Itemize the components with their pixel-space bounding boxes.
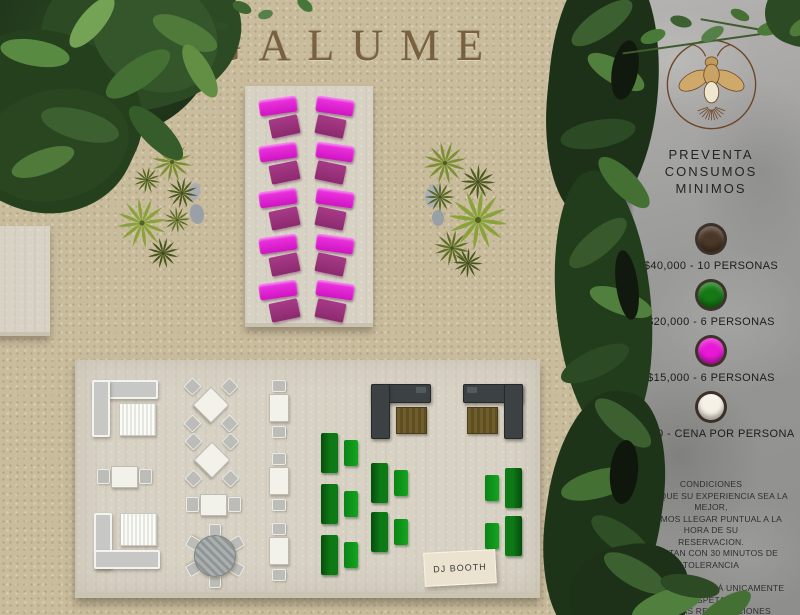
dining-table-4[interactable] <box>183 377 239 433</box>
dining-table-2[interactable] <box>269 380 289 438</box>
dining-table-4[interactable] <box>184 432 240 488</box>
lounger-unit[interactable] <box>259 98 299 138</box>
green-sofa-group[interactable] <box>321 535 358 575</box>
lounger-unit[interactable] <box>259 282 299 322</box>
legend-dot-magenta <box>698 338 724 364</box>
dining-table-2[interactable] <box>186 494 241 516</box>
dining-table-2[interactable] <box>269 523 289 581</box>
venue-map: VAGALUME <box>0 0 800 615</box>
green-sofa-group[interactable] <box>321 484 358 524</box>
dj-booth-label: DJ BOOTH <box>433 562 487 575</box>
lounger-unit[interactable] <box>316 190 356 230</box>
green-sofa-group[interactable] <box>321 433 358 473</box>
legend-label: $40,000 - 10 PERSONAS <box>622 260 800 272</box>
firefly-logo-icon <box>663 36 760 133</box>
legend-item: $40,000 - 10 PERSONAS <box>622 226 800 272</box>
lounger-unit[interactable] <box>259 236 299 276</box>
legend-dot-brown <box>698 226 724 252</box>
lounger-unit[interactable] <box>316 144 356 184</box>
legend-dot-green <box>698 282 724 308</box>
green-sofa-group[interactable] <box>371 463 408 503</box>
green-sofa-group[interactable] <box>371 512 408 552</box>
sidebar-heading: PREVENTA CONSUMOS MINIMOS <box>622 146 800 197</box>
stone-platform-left <box>0 226 50 336</box>
lounger-unit[interactable] <box>316 236 356 276</box>
lounger-unit[interactable] <box>316 98 356 138</box>
dining-table-2[interactable] <box>97 466 152 488</box>
green-sofa-group[interactable] <box>485 468 522 508</box>
dj-booth: DJ BOOTH <box>423 549 497 587</box>
legend-dot-white <box>698 394 724 420</box>
dining-table-round[interactable] <box>187 528 243 584</box>
lounger-unit[interactable] <box>259 190 299 230</box>
lounger-unit[interactable] <box>316 282 356 322</box>
dining-table-2[interactable] <box>269 453 289 511</box>
lounger-unit[interactable] <box>259 144 299 184</box>
